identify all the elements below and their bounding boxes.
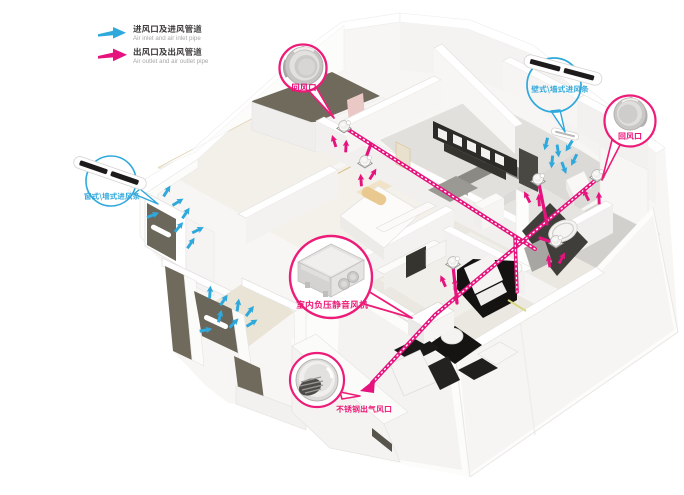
svg-text:Air inlet and air inlet pipe: Air inlet and air inlet pipe [133, 35, 201, 42]
svg-text:Air outlet and air outlet pipe: Air outlet and air outlet pipe [133, 58, 209, 65]
